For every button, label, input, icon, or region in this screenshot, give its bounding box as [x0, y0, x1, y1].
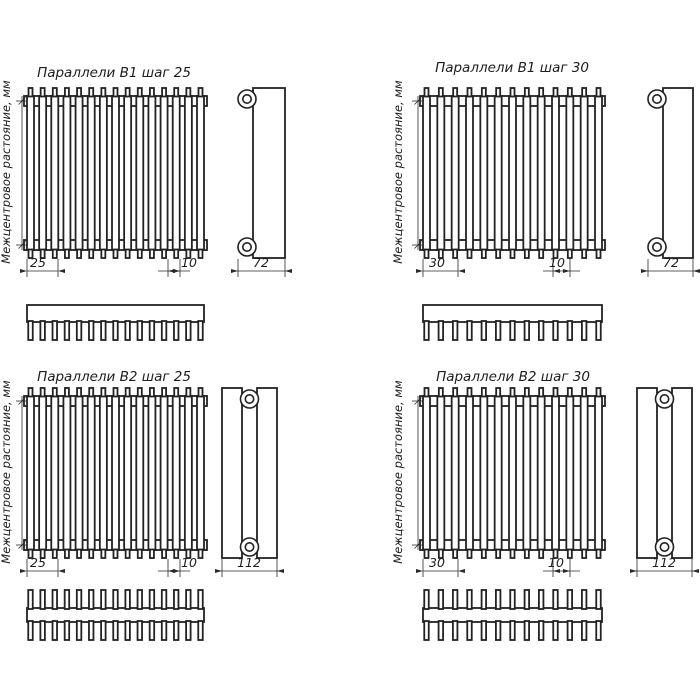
front-tube [39, 396, 46, 550]
depth-dim-arrow-right [693, 269, 700, 273]
front-tube [148, 396, 155, 550]
top-view-collector [423, 608, 602, 622]
top-view-tube-section [525, 621, 530, 640]
tube-stub-top [582, 388, 586, 397]
step-dim-arrow-right [58, 269, 65, 273]
top-view-tube-section [482, 321, 487, 340]
top-view-tube-section [525, 321, 530, 340]
tube-stub-top [496, 388, 500, 397]
top-view-tube-section [568, 621, 573, 640]
tube-stub-top [101, 388, 105, 397]
tube-stub-bottom [126, 250, 130, 259]
tube-dim-arrow-right [173, 569, 180, 573]
front-tube [423, 96, 430, 250]
top-view-tube-section-back [40, 590, 45, 609]
tube-stub-bottom [150, 550, 154, 559]
top-view-collector [27, 608, 204, 622]
side-view-body [663, 88, 693, 258]
tube-stub-bottom [174, 250, 178, 259]
front-tube [566, 396, 573, 550]
front-tube [112, 396, 119, 550]
tube-stub-bottom [162, 550, 166, 559]
tube-stub-bottom [53, 250, 57, 259]
tube-stub-bottom [582, 250, 586, 259]
depth-dim-arrow-right [692, 569, 699, 573]
tube-stub-bottom [468, 250, 472, 259]
top-view-tube-section [89, 321, 94, 340]
tube-stub-top [568, 388, 572, 397]
tube-stub-top [150, 88, 154, 97]
tube-width-dim-label: 10 [181, 555, 197, 570]
front-tube [88, 96, 95, 250]
tube-stub-top [468, 88, 472, 97]
top-view-tube-section-back [553, 590, 558, 609]
front-tube [39, 96, 46, 250]
top-view-tube-section [174, 321, 179, 340]
top-view-tube-section [596, 321, 601, 340]
front-tube [595, 396, 602, 550]
top-view-tube-section-back [510, 590, 515, 609]
quadrant-parallels-b2-step30: Параллели В2 шаг 30 Межцентровое растоян… [391, 369, 699, 640]
top-view-tube-section-back [186, 590, 191, 609]
tube-stub-top [199, 88, 203, 97]
front-tube [124, 96, 131, 250]
top-view-tube-section-back [89, 590, 94, 609]
connection-port-inner [653, 95, 661, 103]
tube-stub-top [439, 388, 443, 397]
front-tube [63, 396, 70, 550]
top-view-tube-section [439, 621, 444, 640]
tube-stub-bottom [126, 550, 130, 559]
connection-port-inner [245, 543, 253, 551]
top-view-tube-section-back [101, 590, 106, 609]
front-tube [185, 96, 192, 250]
tube-stub-bottom [568, 250, 572, 259]
tube-stub-top [162, 388, 166, 397]
drawing-lines-b1-step30 [412, 88, 700, 340]
tube-stub-top [568, 88, 572, 97]
front-tube [197, 96, 204, 250]
front-tube [437, 96, 444, 250]
side-view-back-row [257, 388, 277, 558]
front-tube [173, 396, 180, 550]
front-tube [480, 96, 487, 250]
tube-stub-top [114, 388, 118, 397]
step-dim-label: 30 [429, 555, 445, 570]
top-view-tube-section [439, 321, 444, 340]
quadrant-parallels-b1-step25: Параллели В1 шаг 25 Межцентровое растоян… [0, 65, 292, 340]
front-tube [197, 396, 204, 550]
front-tube [88, 396, 95, 550]
tube-stub-top [554, 388, 558, 397]
tube-stub-top [126, 88, 130, 97]
front-tube [161, 396, 168, 550]
step-dim-arrow-right [458, 569, 465, 573]
drawing-title: Параллели В2 шаг 25 [37, 369, 191, 385]
top-view-tube-section [174, 621, 179, 640]
front-tube [27, 396, 34, 550]
tube-stub-bottom [468, 550, 472, 559]
tube-stub-bottom [511, 250, 515, 259]
front-tube [437, 396, 444, 550]
top-view-tube-section [53, 321, 58, 340]
top-view-tube-section-back [138, 590, 143, 609]
step-dim-label: 25 [30, 555, 46, 570]
tube-stub-top [29, 88, 33, 97]
front-tube [466, 96, 473, 250]
tube-stub-top [554, 88, 558, 97]
connection-port-inner [243, 243, 251, 251]
top-view-tube-section [553, 321, 558, 340]
tube-stub-bottom [453, 250, 457, 259]
tube-width-dim-label: 10 [549, 255, 565, 270]
top-view-tube-section [424, 321, 429, 340]
tube-stub-top [597, 88, 601, 97]
tube-stub-top [582, 88, 586, 97]
tube-stub-bottom [114, 550, 118, 559]
depth-dim-arrow-left [641, 269, 648, 273]
tube-stub-bottom [597, 550, 601, 559]
top-view-tube-section-back [65, 590, 70, 609]
tube-stub-top [53, 88, 57, 97]
tube-stub-top [114, 88, 118, 97]
front-tube [51, 396, 58, 550]
tube-stub-bottom [65, 250, 69, 259]
tube-dim-arrow-right [563, 569, 570, 573]
top-view-collector [27, 305, 204, 322]
tube-stub-bottom [114, 250, 118, 259]
tube-stub-top [89, 88, 93, 97]
top-view-tube-section [28, 321, 33, 340]
drawing-title: Параллели В1 шаг 25 [37, 65, 191, 81]
front-tube [466, 396, 473, 550]
top-view-tube-section [186, 321, 191, 340]
depth-dim-arrow-right [285, 269, 292, 273]
top-view-tube-section [65, 321, 70, 340]
top-view-tube-section-back [496, 590, 501, 609]
top-view-tube-section [539, 321, 544, 340]
front-tube [173, 96, 180, 250]
front-tube [480, 396, 487, 550]
front-tube [161, 96, 168, 250]
front-tube [538, 96, 545, 250]
vertical-dim-label: Межцентровое растояние, мм [391, 80, 405, 264]
tube-stub-bottom [539, 550, 543, 559]
vertical-dim-label: Межцентровое растояние, мм [0, 380, 13, 564]
top-view-tube-section [582, 321, 587, 340]
top-view-tube-section [596, 621, 601, 640]
top-view-tube-section [496, 321, 501, 340]
front-tube [423, 396, 430, 550]
connection-port-inner [243, 95, 251, 103]
top-view-tube-section-back [582, 590, 587, 609]
top-view-tube-section [453, 321, 458, 340]
tube-stub-bottom [138, 550, 142, 559]
tube-stub-top [539, 88, 543, 97]
step-dim-arrow-right [58, 569, 65, 573]
tube-stub-top [425, 388, 429, 397]
front-tube [76, 96, 83, 250]
tube-stub-top [597, 388, 601, 397]
tube-stub-top [453, 88, 457, 97]
step-dim-arrow-left [416, 569, 423, 573]
tube-stub-bottom [65, 550, 69, 559]
depth-dim-label: 112 [237, 555, 261, 570]
tube-stub-top [482, 88, 486, 97]
tube-stub-bottom [89, 550, 93, 559]
tube-stub-top [539, 388, 543, 397]
front-tube [136, 396, 143, 550]
top-view-tube-section [125, 321, 129, 340]
top-view-tube-section-back [162, 590, 167, 609]
tube-stub-top [199, 388, 203, 397]
front-tube [112, 96, 119, 250]
top-view-tube-section [101, 321, 106, 340]
front-tube [27, 96, 34, 250]
top-view-tube-section [467, 621, 472, 640]
drawing-lines-b2-step25 [16, 388, 284, 640]
top-view-tube-section [582, 621, 587, 640]
tube-stub-top [65, 88, 69, 97]
tube-stub-top [174, 388, 178, 397]
tube-stub-bottom [101, 250, 105, 259]
top-view-tube-section [101, 621, 106, 640]
top-view-tube-section [467, 321, 472, 340]
tube-stub-bottom [511, 550, 515, 559]
quadrant-parallels-b2-step25: Параллели В2 шаг 25 Межцентровое растоян… [0, 369, 284, 640]
top-view-tube-section [77, 321, 82, 340]
drawing-title: Параллели В2 шаг 30 [436, 369, 590, 385]
tube-stub-top [186, 388, 190, 397]
depth-dim-arrow-left [630, 569, 637, 573]
front-tube [100, 396, 107, 550]
top-view-tube-section [125, 621, 129, 640]
tube-stub-bottom [199, 550, 203, 559]
front-tube [63, 96, 70, 250]
front-tube [148, 96, 155, 250]
top-view-tube-section [453, 621, 458, 640]
tube-stub-top [126, 388, 130, 397]
drawing-lines-b1-step25 [16, 88, 292, 340]
tube-stub-bottom [525, 250, 529, 259]
top-view-tube-section-back [113, 590, 118, 609]
top-view-tube-section-back [467, 590, 472, 609]
front-tube [495, 96, 502, 250]
top-view-tube-section-back [53, 590, 58, 609]
front-tube [581, 96, 588, 250]
tube-stub-bottom [482, 250, 486, 259]
tube-stub-top [101, 88, 105, 97]
top-view-tube-section [510, 321, 515, 340]
front-tube [495, 396, 502, 550]
tube-stub-bottom [162, 250, 166, 259]
tube-stub-bottom [199, 250, 203, 259]
top-view-tube-section [150, 621, 155, 640]
top-view-tube-section-back [198, 590, 203, 609]
top-view-tube-section [40, 621, 45, 640]
tube-stub-top [174, 88, 178, 97]
top-view-tube-section [553, 621, 558, 640]
tube-stub-bottom [568, 550, 572, 559]
top-view-tube-section [482, 621, 487, 640]
depth-dim-label: 112 [652, 555, 676, 570]
tube-stub-top [138, 88, 142, 97]
top-view-tube-section-back [525, 590, 530, 609]
connection-port-inner [653, 243, 661, 251]
tube-stub-top [77, 388, 81, 397]
tube-stub-bottom [496, 250, 500, 259]
top-view-tube-section-back [453, 590, 458, 609]
step-dim-arrow-right [458, 269, 465, 273]
tube-stub-bottom [89, 250, 93, 259]
tube-stub-top [453, 388, 457, 397]
top-view-collector [423, 305, 602, 322]
tube-stub-top [439, 88, 443, 97]
top-view-tube-section [40, 321, 45, 340]
front-tube [581, 396, 588, 550]
top-view-tube-section [77, 621, 82, 640]
tube-stub-top [41, 388, 45, 397]
step-dim-label: 30 [429, 255, 445, 270]
side-view-body [253, 88, 285, 258]
drawing-title: Параллели В1 шаг 30 [435, 60, 589, 76]
tube-width-dim-label: 10 [181, 255, 197, 270]
top-view-tube-section-back [596, 590, 601, 609]
top-view-tube-section [162, 621, 167, 640]
tube-stub-bottom [150, 250, 154, 259]
tube-stub-bottom [496, 550, 500, 559]
tube-stub-bottom [482, 550, 486, 559]
tube-stub-bottom [138, 250, 142, 259]
top-view-tube-section-back [439, 590, 444, 609]
side-view-back-row [672, 388, 692, 558]
tube-stub-top [482, 388, 486, 397]
front-tube [552, 396, 559, 550]
front-tube [523, 396, 530, 550]
top-view-tube-section [150, 321, 155, 340]
tube-stub-top [41, 88, 45, 97]
front-tube [452, 396, 459, 550]
tube-stub-bottom [425, 550, 429, 559]
tube-stub-top [525, 88, 529, 97]
tube-stub-top [89, 388, 93, 397]
tube-stub-top [425, 88, 429, 97]
top-view-tube-section [113, 321, 118, 340]
top-view-tube-section [113, 621, 118, 640]
tube-stub-top [511, 388, 515, 397]
top-view-tube-section-back [539, 590, 544, 609]
tube-stub-bottom [539, 250, 543, 259]
tube-stub-top [53, 388, 57, 397]
quadrant-parallels-b1-step30: Параллели В1 шаг 30 Межцентровое растоян… [391, 60, 700, 340]
top-view-tube-section-back [424, 590, 429, 609]
connection-port-inner [245, 395, 253, 403]
top-view-tube-section [198, 621, 203, 640]
depth-dim-arrow-left [215, 569, 222, 573]
front-tube [100, 96, 107, 250]
depth-dim-arrow-right [277, 569, 284, 573]
tube-stub-top [138, 388, 142, 397]
vertical-dim-label: Межцентровое растояние, мм [0, 80, 13, 264]
top-view-tube-section [186, 621, 191, 640]
front-tube [185, 396, 192, 550]
top-view-tube-section-back [150, 590, 155, 609]
tube-stub-top [77, 88, 81, 97]
tube-stub-top [496, 88, 500, 97]
top-view-tube-section [162, 321, 167, 340]
top-view-tube-section [65, 621, 70, 640]
top-view-tube-section [539, 621, 544, 640]
tube-stub-top [468, 388, 472, 397]
top-view-tube-section-back [482, 590, 487, 609]
top-view-tube-section-back [28, 590, 33, 609]
front-tube [51, 96, 58, 250]
top-view-tube-section [424, 621, 429, 640]
tube-stub-bottom [77, 250, 81, 259]
depth-dim-label: 72 [253, 255, 269, 270]
top-view-tube-section [568, 321, 573, 340]
top-view-tube-section [198, 321, 203, 340]
front-tube [595, 96, 602, 250]
top-view-tube-section [496, 621, 501, 640]
drawing-lines-b2-step30 [412, 388, 699, 640]
tube-stub-bottom [174, 550, 178, 559]
top-view-tube-section-back [77, 590, 82, 609]
step-dim-arrow-left [20, 569, 27, 573]
front-tube [124, 396, 131, 550]
depth-dim-arrow-left [231, 269, 238, 273]
step-dim-arrow-left [20, 269, 27, 273]
front-tube [509, 396, 516, 550]
tube-stub-top [162, 88, 166, 97]
tube-stub-top [511, 88, 515, 97]
front-tube [509, 96, 516, 250]
top-view-tube-section-back [568, 590, 573, 609]
tube-stub-bottom [453, 550, 457, 559]
step-dim-arrow-left [416, 269, 423, 273]
tube-stub-top [186, 88, 190, 97]
step-dim-label: 25 [30, 255, 46, 270]
top-view-tube-section [53, 621, 58, 640]
tube-stub-top [29, 388, 33, 397]
front-tube [523, 96, 530, 250]
front-tube [566, 96, 573, 250]
front-tube [76, 396, 83, 550]
side-view-front-row [637, 388, 657, 558]
tube-stub-bottom [597, 250, 601, 259]
tube-dim-arrow-right [173, 269, 180, 273]
radiator-technical-drawing: Параллели В1 шаг 25 Межцентровое растоян… [0, 0, 700, 700]
tube-stub-bottom [101, 550, 105, 559]
top-view-tube-section [89, 621, 94, 640]
depth-dim-label: 72 [663, 255, 679, 270]
tube-stub-top [525, 388, 529, 397]
top-view-tube-section-back [125, 590, 129, 609]
side-view-front-row [222, 388, 242, 558]
connection-port-inner [660, 395, 668, 403]
tube-stub-top [150, 388, 154, 397]
top-view-tube-section [28, 621, 33, 640]
tube-stub-top [65, 388, 69, 397]
tube-stub-bottom [525, 550, 529, 559]
top-view-tube-section [138, 621, 143, 640]
front-tube [552, 96, 559, 250]
vertical-dim-label: Межцентровое растояние, мм [391, 380, 405, 564]
connection-port-inner [660, 543, 668, 551]
top-view-tube-section [138, 321, 143, 340]
front-tube [136, 96, 143, 250]
top-view-tube-section [510, 621, 515, 640]
